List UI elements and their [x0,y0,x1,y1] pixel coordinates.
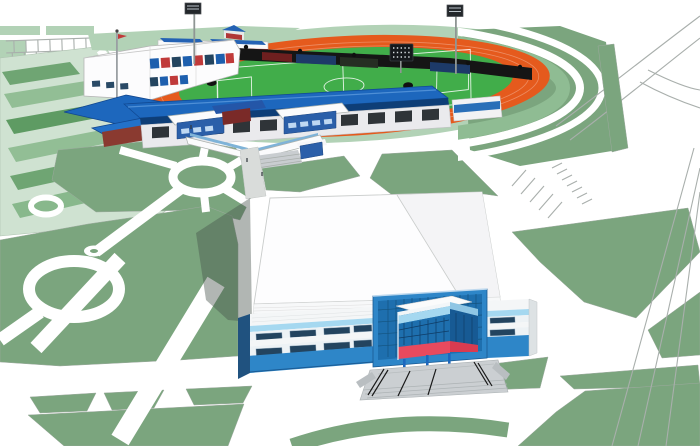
lawn-strip [46,26,94,35]
floodlight-pole [193,14,195,64]
hall-end-wall-east [529,299,537,356]
scene-svg [0,0,700,446]
scoreboard-pole [400,61,402,73]
floodlight-pole [455,16,457,74]
window-row [490,317,515,324]
hall-end-wall [238,314,250,379]
flag-mast [116,32,118,98]
blue-base-band [487,335,529,358]
lawn-strip [0,26,40,35]
path [204,194,206,212]
window-row [490,329,515,336]
lawn-island [186,386,252,405]
mast-top [115,29,118,32]
lawn-dot [90,249,98,253]
facade-left-section [250,307,373,373]
architectural-rendering [0,0,700,446]
facade-right-section [487,299,537,358]
siding-band [487,299,529,311]
floodlight-panel [447,5,463,17]
